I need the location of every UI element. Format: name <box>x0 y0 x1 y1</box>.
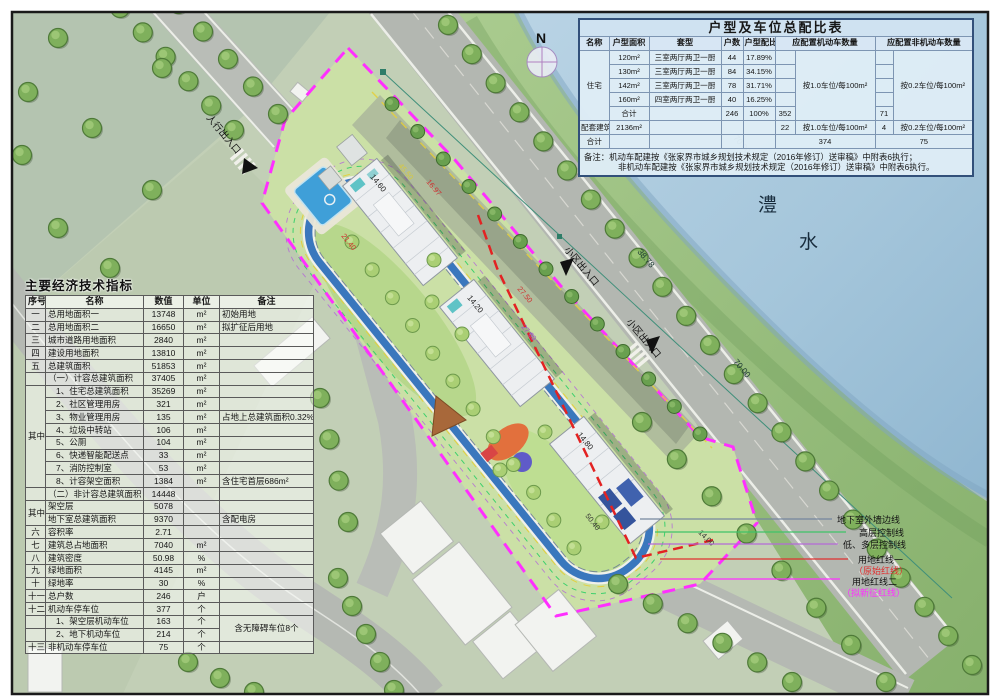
table-cell: 377 <box>144 603 184 616</box>
table-row: 其中1、住宅总建筑面积35269m² <box>26 385 314 398</box>
table-cell: 4 <box>875 121 893 135</box>
legend-label-redline1: 用地红线一 <box>858 554 903 565</box>
table-cell: 44 <box>721 51 743 65</box>
table-cell: 7、消防控制室 <box>46 462 144 475</box>
table-cell: 建筑总占地面积 <box>46 539 144 552</box>
table-cell: 130m² <box>609 65 649 79</box>
table-cell: m² <box>184 564 220 577</box>
table-cell: 1、架空层机动车位 <box>46 615 144 628</box>
table-cell: 户 <box>184 590 220 603</box>
table-cell: 75 <box>144 641 184 654</box>
table-cell: m² <box>184 411 220 424</box>
table-cell: 106 <box>144 423 184 436</box>
legend-sub-redline2: （拟新征红线） <box>842 587 905 598</box>
table-row: 二总用地面积二16650m²拟扩征后用地 <box>26 321 314 334</box>
table-cell: 8、计容架空面积 <box>46 475 144 488</box>
table-cell: 配套建筑 <box>579 121 609 135</box>
table-cell: 架空层 <box>46 500 144 513</box>
river-char-1: 澧 <box>758 194 777 216</box>
table-cell: m² <box>184 321 220 334</box>
table-cell: 六 <box>26 526 46 539</box>
table-cell <box>220 385 314 398</box>
table-cell <box>220 526 314 539</box>
table-row: 4、垃圾中转站106m² <box>26 423 314 436</box>
north-label: N <box>536 30 546 46</box>
table-cell: 总用地面积二 <box>46 321 144 334</box>
table-row: 3、物业管理用房135m²占地上总建筑面积0.32% <box>26 411 314 424</box>
table-cell <box>26 487 46 500</box>
table-cell: 绿地面积 <box>46 564 144 577</box>
table-cell: 四室两厅两卫一厨 <box>649 93 721 107</box>
table-row: 备注：机动车配建按《张家界市城乡规划技术规定（2016年修订）送审稿》中附表6执… <box>579 149 973 177</box>
parking-table-notes: 备注：机动车配建按《张家界市城乡规划技术规定（2016年修订）送审稿》中附表6执… <box>579 149 973 177</box>
table-cell: 应配置机动车数量 <box>775 37 875 51</box>
table-cell <box>775 79 795 93</box>
table-cell: 住宅 <box>579 51 609 121</box>
table-cell: 单位 <box>184 296 220 309</box>
economic-indicators-panel: 主要经济技术指标 序号名称数值单位备注一总用地面积一13748m²初始用地二总用… <box>25 279 313 654</box>
table-cell: 4145 <box>144 564 184 577</box>
table-row: 名称户型面积套型户数户型配比应配置机动车数量应配置非机动车数量 <box>579 37 973 51</box>
table-cell: 总户数 <box>46 590 144 603</box>
table-cell: 总建筑面积 <box>46 359 144 372</box>
table-cell <box>220 449 314 462</box>
table-row: 2、社区管理用房321m² <box>26 398 314 411</box>
table-cell: 一 <box>26 308 46 321</box>
table-cell: 120m² <box>609 51 649 65</box>
table-cell <box>220 347 314 360</box>
table-row: 八建筑密度50.98% <box>26 551 314 564</box>
legend-label-basement: 地下室外墙边线 <box>837 514 900 525</box>
table-cell: 2840 <box>144 334 184 347</box>
table-row: 配套建筑2136m²22按1.0车位/每100m²4按0.2车位/每100m² <box>579 121 973 135</box>
table-cell: 应配置非机动车数量 <box>875 37 973 51</box>
table-cell <box>649 107 721 121</box>
note-line-1: 备注：机动车配建按《张家界市城乡规划技术规定（2016年修订）送审稿》中附表6执… <box>584 152 968 163</box>
table-cell: m² <box>184 423 220 436</box>
table-cell: 数值 <box>144 296 184 309</box>
table-cell: 地下室总建筑面积 <box>46 513 144 526</box>
table-cell: 个 <box>184 628 220 641</box>
table-cell <box>26 372 46 385</box>
table-row: 8、计容架空面积1384m²含住宅首层686m² <box>26 475 314 488</box>
table-row: 地下室总建筑面积9370含配电房 <box>26 513 314 526</box>
table-cell: 142m² <box>609 79 649 93</box>
table-cell: 拟扩征后用地 <box>220 321 314 334</box>
table-cell: 套型 <box>649 37 721 51</box>
table-cell <box>220 590 314 603</box>
table-cell: 七 <box>26 539 46 552</box>
table-cell: 84 <box>721 65 743 79</box>
table-cell: 十一 <box>26 590 46 603</box>
table-cell: m² <box>184 475 220 488</box>
legend-label-lowrise: 低、多层控制线 <box>843 539 906 550</box>
table-cell: 四 <box>26 347 46 360</box>
river-char-2: 水 <box>799 231 818 253</box>
table-cell: 合计 <box>609 107 649 121</box>
table-cell: 按0.2车位/每100m² <box>893 121 973 135</box>
table-cell: 十二 <box>26 603 46 616</box>
table-cell: 78 <box>721 79 743 93</box>
table-cell: 建筑密度 <box>46 551 144 564</box>
table-cell: 建设用地面积 <box>46 347 144 360</box>
table-cell: 51853 <box>144 359 184 372</box>
economic-table-title: 主要经济技术指标 <box>25 279 313 295</box>
table-cell: 37405 <box>144 372 184 385</box>
table-row: 十二机动车停车位377个 <box>26 603 314 616</box>
table-cell: 7040 <box>144 539 184 552</box>
table-cell: 绿地率 <box>46 577 144 590</box>
parking-ratio-table: 户型及车位总配比表 名称户型面积套型户数户型配比应配置机动车数量应配置非机动车数… <box>578 18 974 177</box>
legend-sub-redline1: （原始红线） <box>854 565 908 576</box>
table-cell <box>775 65 795 79</box>
table-cell: 100% <box>743 107 775 121</box>
table-cell: 三 <box>26 334 46 347</box>
table-cell: m² <box>184 359 220 372</box>
table-cell: 16650 <box>144 321 184 334</box>
table-cell: 31.71% <box>743 79 775 93</box>
table-cell: 14448 <box>144 487 184 500</box>
table-cell <box>220 372 314 385</box>
table-cell: 1384 <box>144 475 184 488</box>
table-cell: 初始用地 <box>220 308 314 321</box>
table-row: （二）非计容总建筑面积14448 <box>26 487 314 500</box>
table-cell: （一）计容总建筑面积 <box>46 372 144 385</box>
table-cell: 246 <box>144 590 184 603</box>
table-cell: % <box>184 551 220 564</box>
table-cell <box>743 121 775 135</box>
table-cell: 104 <box>144 436 184 449</box>
table-cell: 5、公厕 <box>46 436 144 449</box>
table-cell <box>220 398 314 411</box>
table-row: 序号名称数值单位备注 <box>26 296 314 309</box>
table-cell: 2、地下机动车位 <box>46 628 144 641</box>
table-row: 一总用地面积一13748m²初始用地 <box>26 308 314 321</box>
table-cell: 名称 <box>46 296 144 309</box>
table-cell <box>220 359 314 372</box>
table-row: 合计37475 <box>579 135 973 149</box>
table-cell <box>721 121 743 135</box>
table-cell: 5078 <box>144 500 184 513</box>
table-cell: 户型面积 <box>609 37 649 51</box>
table-row: 其中架空层5078 <box>26 500 314 513</box>
table-row: （一）计容总建筑面积37405m² <box>26 372 314 385</box>
table-cell: 160m² <box>609 93 649 107</box>
table-row: 七建筑总占地面积7040m² <box>26 539 314 552</box>
table-cell <box>220 487 314 500</box>
table-cell <box>220 564 314 577</box>
table-cell: （二）非计容总建筑面积 <box>46 487 144 500</box>
table-cell: m² <box>184 308 220 321</box>
table-cell <box>220 539 314 552</box>
table-cell <box>220 462 314 475</box>
table-cell: 321 <box>144 398 184 411</box>
table-cell: 16.25% <box>743 93 775 107</box>
table-cell: 其中 <box>26 500 46 526</box>
table-cell <box>26 615 46 628</box>
table-cell <box>875 51 893 65</box>
table-row: 7、消防控制室53m² <box>26 462 314 475</box>
table-cell <box>743 135 775 149</box>
table-cell: 其中 <box>26 385 46 487</box>
table-row: 十一总户数246户 <box>26 590 314 603</box>
parking-table-title: 户型及车位总配比表 <box>579 19 973 37</box>
table-cell: 个 <box>184 615 220 628</box>
table-cell: 含住宅首层686m² <box>220 475 314 488</box>
table-cell: 总用地面积一 <box>46 308 144 321</box>
table-cell <box>220 423 314 436</box>
table-cell: 三室两厅两卫一厨 <box>649 79 721 93</box>
table-cell <box>609 135 649 149</box>
table-row: 1、架空层机动车位163个含无障碍车位8个 <box>26 615 314 628</box>
table-cell: 十三 <box>26 641 46 654</box>
table-cell <box>875 65 893 79</box>
site-plan-sheet: 14.60 14.20 14.80 <box>0 0 1000 700</box>
table-cell: m² <box>184 436 220 449</box>
table-cell: 户数 <box>721 37 743 51</box>
table-cell: 八 <box>26 551 46 564</box>
table-cell <box>220 500 314 513</box>
table-cell <box>220 577 314 590</box>
table-cell: 二 <box>26 321 46 334</box>
table-cell: 135 <box>144 411 184 424</box>
legend-label-redline2: 用地红线二 <box>852 576 897 587</box>
legend-label-highrise: 高层控制线 <box>859 527 904 538</box>
table-cell: m² <box>184 347 220 360</box>
table-cell: 4、垃圾中转站 <box>46 423 144 436</box>
table-cell <box>220 603 314 616</box>
table-cell: 34.15% <box>743 65 775 79</box>
table-cell: 246 <box>721 107 743 121</box>
table-row: 十绿地率30% <box>26 577 314 590</box>
table-cell: 九 <box>26 564 46 577</box>
table-cell: 容积率 <box>46 526 144 539</box>
table-cell <box>220 641 314 654</box>
table-cell: 序号 <box>26 296 46 309</box>
table-row: 五总建筑面积51853m² <box>26 359 314 372</box>
table-row: 住宅120m²三室两厅两卫一厨4417.89%按1.0车位/每100m²按0.2… <box>579 51 973 65</box>
table-cell <box>26 628 46 641</box>
table-cell: 占地上总建筑面积0.32% <box>220 411 314 424</box>
table-cell: 22 <box>775 121 795 135</box>
table-cell: m² <box>184 449 220 462</box>
parking-ratio-panel: 户型及车位总配比表 名称户型面积套型户数户型配比应配置机动车数量应配置非机动车数… <box>578 18 972 177</box>
table-cell <box>875 93 893 107</box>
table-cell: m² <box>184 398 220 411</box>
table-cell: 按1.0车位/每100m² <box>795 51 875 121</box>
table-cell: 163 <box>144 615 184 628</box>
table-row: 六容积率2.71 <box>26 526 314 539</box>
table-cell: 3、物业管理用房 <box>46 411 144 424</box>
table-cell: m² <box>184 385 220 398</box>
table-cell: 30 <box>144 577 184 590</box>
table-cell <box>184 500 220 513</box>
table-cell <box>220 551 314 564</box>
table-cell: 备注 <box>220 296 314 309</box>
table-row: 户型及车位总配比表 <box>579 19 973 37</box>
table-cell: m² <box>184 334 220 347</box>
table-cell: 1、住宅总建筑面积 <box>46 385 144 398</box>
table-cell: 40 <box>721 93 743 107</box>
table-cell: 五 <box>26 359 46 372</box>
table-cell: 非机动车停车位 <box>46 641 144 654</box>
table-cell: 71 <box>875 107 893 121</box>
table-cell: 按1.0车位/每100m² <box>795 121 875 135</box>
table-cell <box>220 334 314 347</box>
note-line-2: 非机动车配建按《张家界市城乡规划技术规定（2016年修订）送审稿》中附表6执行。 <box>584 162 968 173</box>
table-cell: 352 <box>775 107 795 121</box>
table-cell <box>875 79 893 93</box>
table-cell: 合计 <box>579 135 609 149</box>
economic-indicators-table: 序号名称数值单位备注一总用地面积一13748m²初始用地二总用地面积二16650… <box>25 295 314 654</box>
table-cell: 三室两厅两卫一厨 <box>649 65 721 79</box>
table-cell: 13748 <box>144 308 184 321</box>
table-cell: 75 <box>875 135 973 149</box>
table-cell <box>649 135 721 149</box>
table-cell: 户型配比 <box>743 37 775 51</box>
table-cell: 名称 <box>579 37 609 51</box>
table-cell: 城市道路用地面积 <box>46 334 144 347</box>
table-cell: 按0.2车位/每100m² <box>893 51 973 121</box>
table-cell: 机动车停车位 <box>46 603 144 616</box>
table-cell <box>721 135 743 149</box>
table-cell: m² <box>184 462 220 475</box>
table-cell <box>649 121 721 135</box>
table-cell: m² <box>184 372 220 385</box>
table-row: 十三非机动车停车位75个 <box>26 641 314 654</box>
table-cell: 2、社区管理用房 <box>46 398 144 411</box>
table-cell: 含配电房 <box>220 513 314 526</box>
table-cell: 50.98 <box>144 551 184 564</box>
table-cell: 个 <box>184 603 220 616</box>
table-row: 5、公厕104m² <box>26 436 314 449</box>
table-cell: 十 <box>26 577 46 590</box>
table-cell <box>184 513 220 526</box>
table-row: 6、快递智能配送点33m² <box>26 449 314 462</box>
table-cell: 2136m² <box>609 121 649 135</box>
table-cell: % <box>184 577 220 590</box>
table-cell: 33 <box>144 449 184 462</box>
table-cell <box>184 487 220 500</box>
table-cell: 含无障碍车位8个 <box>220 615 314 641</box>
table-cell: 13810 <box>144 347 184 360</box>
table-cell: 53 <box>144 462 184 475</box>
table-cell <box>775 93 795 107</box>
table-cell: 17.89% <box>743 51 775 65</box>
table-cell: 三室两厅两卫一厨 <box>649 51 721 65</box>
table-cell: 2.71 <box>144 526 184 539</box>
table-cell: m² <box>184 539 220 552</box>
table-cell: 9370 <box>144 513 184 526</box>
table-row: 四建设用地面积13810m² <box>26 347 314 360</box>
table-cell: 个 <box>184 641 220 654</box>
table-cell: 6、快递智能配送点 <box>46 449 144 462</box>
table-cell: 214 <box>144 628 184 641</box>
table-cell: 35269 <box>144 385 184 398</box>
table-cell <box>775 51 795 65</box>
table-row: 九绿地面积4145m² <box>26 564 314 577</box>
table-cell: 374 <box>775 135 875 149</box>
table-cell <box>184 526 220 539</box>
table-cell <box>220 436 314 449</box>
table-row: 三城市道路用地面积2840m² <box>26 334 314 347</box>
